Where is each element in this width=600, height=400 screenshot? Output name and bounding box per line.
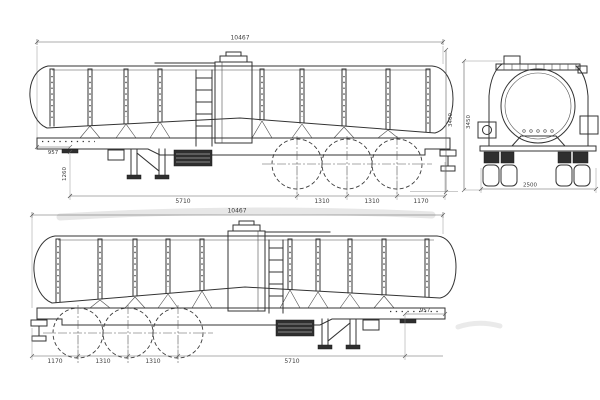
rear-suspension: [480, 146, 596, 186]
rear-bumper: [448, 138, 450, 166]
side-box-bottom: [363, 320, 379, 330]
side-view-top: 10467: [30, 35, 458, 206]
landing-legs: [127, 149, 169, 179]
dim-label-axle2-top: 1310: [364, 198, 379, 205]
dim-label-overall-length-top: 10467: [230, 35, 249, 42]
blueprint-canvas: 10467: [0, 0, 600, 400]
tank-rear: [478, 64, 598, 146]
rear-view: 3450: [462, 56, 598, 193]
dim-label-axle1-bottom: 1310: [95, 358, 110, 365]
manhole-cover: [220, 56, 247, 62]
landing-legs-bottom: [318, 319, 360, 349]
toolbox-bottom: [276, 320, 314, 336]
tank-saddle: [512, 136, 565, 146]
dim-chain-bottom-top-view: 5710 1310 1310 1170: [68, 154, 447, 205]
center-cabinet-bottom: [228, 221, 265, 311]
rear-bumper-bottom: [37, 308, 39, 336]
dim-label-width-rear: 2500: [523, 183, 537, 189]
dim-label-height-rear: 3450: [466, 115, 472, 129]
dim-label-front-overhang-top: 957: [48, 150, 59, 156]
tire: [483, 165, 499, 186]
dim-label-wheelbase-bottom: 5710: [284, 358, 299, 365]
dim-label-rear-overhang-top: 1170: [413, 198, 428, 205]
rear-right-bracket: [580, 116, 598, 134]
tire: [556, 165, 572, 186]
kingpin-bottom: [400, 319, 416, 323]
dim-label-kingpin-height: 1260: [62, 167, 68, 181]
dim-label-height-side: 3460: [448, 113, 454, 127]
dim-chain-bottom-bottom-view: 1170 1310 1310 5710: [30, 314, 443, 365]
manhole-cover-bottom: [233, 225, 260, 231]
dim-label-rear-overhang-bottom: 1170: [47, 358, 62, 365]
dim-width-rear: 2500: [479, 168, 598, 193]
side-view-bottom: 10467: [30, 208, 456, 366]
dim-label-wheelbase-top: 5710: [175, 198, 190, 205]
ladder: [196, 70, 212, 146]
dim-overall-length-top: 10467: [35, 35, 445, 139]
tire: [501, 165, 517, 186]
dim-label-axle1-top: 1310: [314, 198, 329, 205]
dim-kingpin-height: 1260: [62, 150, 72, 198]
watermark-smudge: [458, 323, 500, 327]
top-walkway: [496, 56, 587, 73]
dim-label-axle2-bottom: 1310: [145, 358, 160, 365]
tire: [574, 165, 590, 186]
dim-front-overhang-bottom: 957: [403, 308, 447, 316]
dim-label-front-overhang-bottom: 957: [420, 308, 431, 314]
rear-left-box: [478, 122, 496, 138]
support-ribs: [50, 69, 430, 138]
toolbox: [174, 150, 212, 166]
top-hatch: [504, 56, 520, 64]
dim-overall-length-bottom: 10467: [30, 208, 445, 309]
ladder-bottom: [269, 240, 283, 313]
tank-body-bottom: [34, 236, 456, 303]
side-box: [108, 150, 124, 160]
dim-label-overall-length-bottom: 10467: [227, 208, 246, 215]
